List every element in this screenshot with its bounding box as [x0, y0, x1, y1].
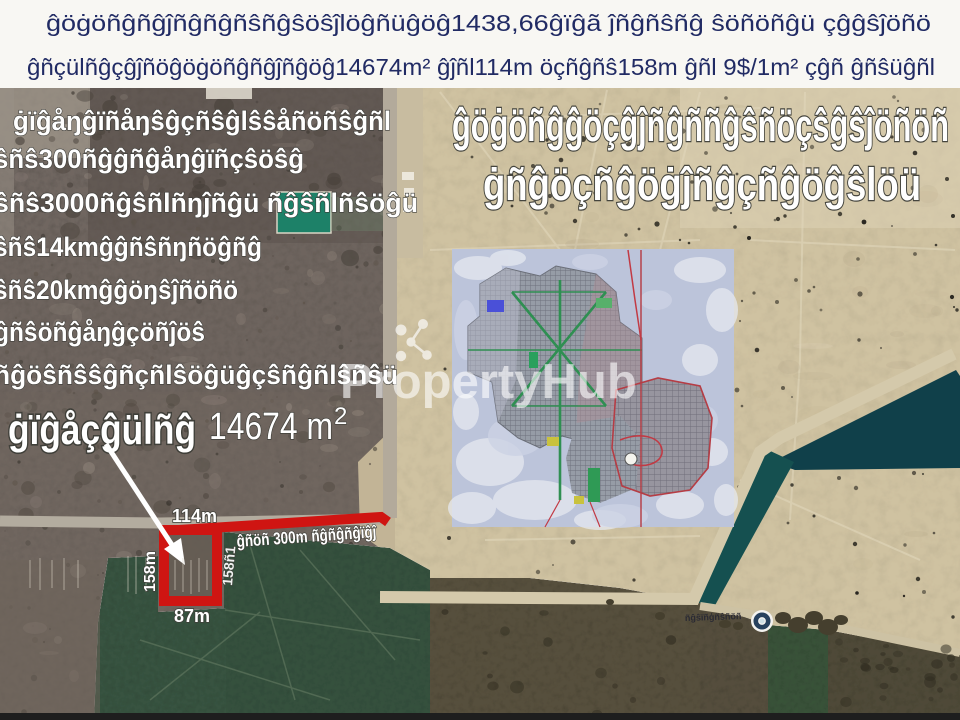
svg-text:114m: 114m: [172, 506, 217, 526]
svg-text:ġïĝåçĝülñĝ: ġïĝåçĝülñĝ: [8, 406, 196, 453]
svg-text:2: 2: [334, 403, 347, 430]
svg-text:ĝñçülñĝçĝĵñöĝöġöñĝñĝĵñĝöĝ14674: ĝñçülñĝçĝĵñöĝöġöñĝñĝĵñĝöĝ14674m² ĝĵñl114…: [27, 54, 935, 80]
svg-text:PropertyHub: PropertyHub: [340, 355, 637, 409]
svg-text:ŝñŝ3000ñĝŝñlñŋĵñĝü ñĝŝñlñŝöĝü: ŝñŝ3000ñĝŝñlñŋĵñĝü ñĝŝñlñŝöĝü: [0, 188, 418, 218]
svg-text:ġïĝåŋĝïñåŋŝĝçñŝĝlŝŝåñöñŝĝñl: ġïĝåŋĝïñåŋŝĝçñŝĝlŝŝåñöñŝĝñl: [13, 106, 391, 136]
svg-text:ŝñŝ20kmĝĝöŋŝĵñöñö: ŝñŝ20kmĝĝöŋŝĵñöñö: [0, 275, 238, 305]
svg-text:87m: 87m: [174, 606, 210, 626]
svg-text:ŝñŝ14kmĝĝñŝñŋñöĝñĝ: ŝñŝ14kmĝĝñŝñŋñöĝñĝ: [0, 232, 262, 262]
svg-text:ĝöġöñĝñĝĵñĝñĝñŝñĝŝöŝĵlöĝñüĝöĝ1: ĝöġöñĝñĝĵñĝñĝñŝñĝŝöŝĵlöĝñüĝöĝ1438,66ĝïĝã…: [46, 10, 931, 36]
svg-text:ĝñŝöñĝåŋĝçöñĵöŝ: ĝñŝöñĝåŋĝçöñĵöŝ: [0, 317, 205, 347]
svg-text:ŝñŝ300ñĝĝñĝåŋĝïñçŝöŝĝ: ŝñŝ300ñĝĝñĝåŋĝïñçŝöŝĝ: [0, 144, 304, 174]
svg-text:14674 m: 14674 m: [209, 406, 333, 448]
svg-text:ġñĝöçñĝöġĵñĝçñĝöĝŝlöü: ġñĝöçñĝöġĵñĝçñĝöĝŝlöü: [483, 159, 921, 210]
svg-text:158m: 158m: [142, 551, 159, 592]
svg-text:ĝöġöñĝĝöçĝĵñĝññĝŝñöçŝĝŝĵöñöñ: ĝöġöñĝĝöçĝĵñĝññĝŝñöçŝĝŝĵöñöñ: [452, 100, 949, 151]
svg-text:ñĝŝïñģñŝñöñ: ñĝŝïñģñŝñöñ: [685, 611, 742, 623]
svg-text:ñĝöŝñŝŝĝñçñlŝöĝüĝçŝñĝñlŝñŝü: ñĝöŝñŝŝĝñçñlŝöĝüĝçŝñĝñlŝñŝü: [0, 360, 398, 390]
